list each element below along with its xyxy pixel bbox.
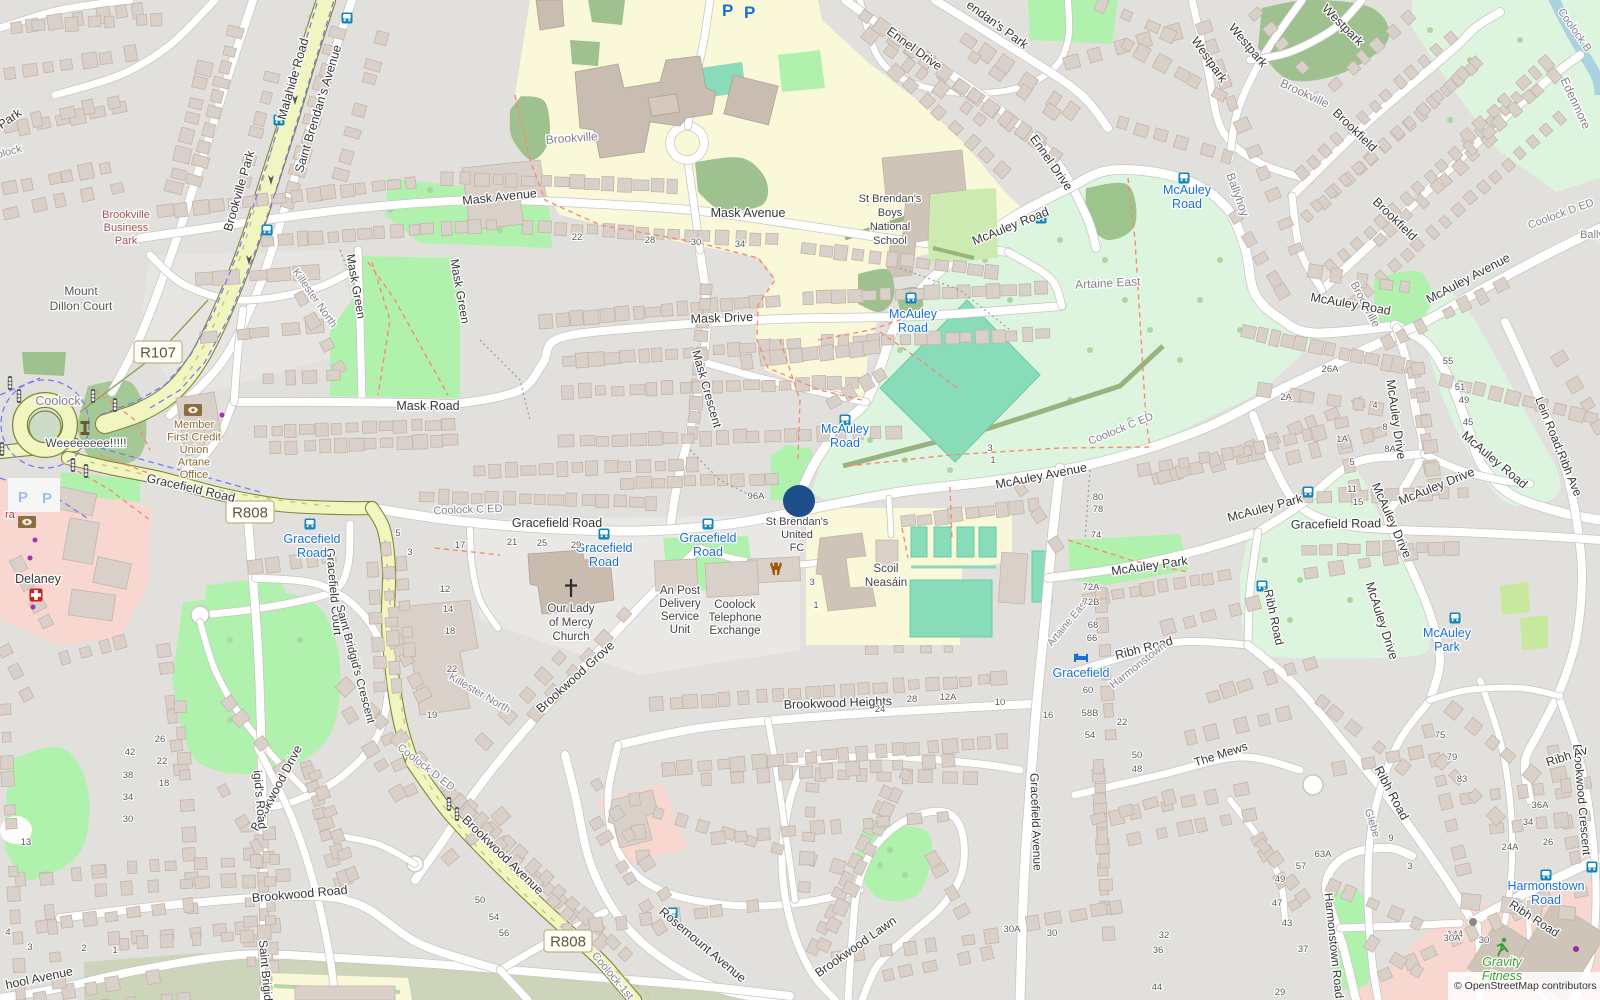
svg-text:51: 51: [1455, 382, 1466, 393]
svg-text:30: 30: [1479, 935, 1490, 946]
svg-text:49: 49: [1275, 874, 1286, 885]
svg-text:Mask Avenue: Mask Avenue: [711, 206, 786, 220]
svg-text:24: 24: [875, 704, 886, 715]
svg-text:68: 68: [1088, 620, 1099, 631]
svg-text:1A: 1A: [1336, 434, 1348, 445]
svg-text:25: 25: [537, 538, 548, 549]
svg-text:Mask Drive: Mask Drive: [690, 310, 753, 326]
svg-text:3: 3: [407, 547, 412, 558]
svg-text:17: 17: [455, 540, 466, 551]
svg-text:75: 75: [1435, 730, 1446, 741]
svg-text:32: 32: [1159, 930, 1170, 941]
svg-text:Our Ladyof MercyChurch: Our Ladyof MercyChurch: [547, 603, 595, 643]
svg-text:Delaney: Delaney: [15, 572, 62, 586]
svg-text:30: 30: [123, 814, 134, 825]
svg-text:Coolock C ED: Coolock C ED: [433, 503, 503, 517]
svg-text:Gracefield Road: Gracefield Road: [512, 516, 602, 530]
svg-text:9: 9: [1388, 833, 1393, 844]
svg-text:R808: R808: [550, 934, 586, 951]
svg-text:60: 60: [1083, 685, 1094, 696]
svg-text:78: 78: [1093, 504, 1104, 515]
svg-text:Weeeeeeee!!!!!: Weeeeeeee!!!!!: [45, 436, 126, 450]
svg-text:36A: 36A: [1532, 800, 1550, 811]
svg-text:56: 56: [499, 928, 510, 939]
svg-text:66: 66: [1087, 633, 1098, 644]
svg-text:3: 3: [809, 577, 814, 588]
svg-text:Gracefield: Gracefield: [1053, 666, 1110, 680]
svg-text:R808: R808: [232, 505, 268, 522]
svg-text:54: 54: [489, 912, 500, 923]
svg-text:54: 54: [1085, 730, 1096, 741]
svg-text:5: 5: [395, 528, 400, 539]
svg-text:28: 28: [907, 694, 918, 705]
svg-text:26A: 26A: [1322, 364, 1340, 375]
svg-text:3: 3: [1407, 861, 1412, 872]
svg-text:36: 36: [1153, 945, 1164, 956]
svg-text:30A: 30A: [1444, 933, 1462, 944]
svg-text:79: 79: [1447, 752, 1458, 763]
svg-text:22: 22: [157, 756, 168, 767]
svg-text:43: 43: [1282, 918, 1293, 929]
svg-text:8A: 8A: [1384, 444, 1396, 455]
svg-text:22: 22: [1117, 717, 1128, 728]
svg-text:10: 10: [995, 697, 1006, 708]
svg-text:12: 12: [440, 584, 451, 595]
svg-text:2: 2: [81, 943, 86, 954]
svg-text:2A: 2A: [1280, 392, 1292, 403]
svg-text:45: 45: [1463, 417, 1474, 428]
svg-text:22: 22: [572, 232, 583, 243]
svg-text:1: 1: [813, 600, 818, 611]
svg-text:Coolock: Coolock: [35, 394, 81, 408]
svg-text:38: 38: [123, 770, 134, 781]
svg-text:Gracefield Road: Gracefield Road: [1291, 516, 1382, 532]
svg-text:P: P: [18, 489, 28, 506]
svg-text:29: 29: [571, 540, 582, 551]
svg-text:12A: 12A: [940, 692, 958, 703]
svg-text:30: 30: [691, 237, 702, 248]
svg-text:GravityFitness: GravityFitness: [1482, 955, 1523, 983]
svg-text:29: 29: [1275, 987, 1286, 998]
svg-text:30: 30: [1047, 928, 1058, 939]
svg-text:R107: R107: [140, 345, 176, 362]
svg-text:P: P: [744, 3, 755, 22]
svg-text:34: 34: [735, 239, 746, 250]
svg-text:14: 14: [443, 604, 454, 615]
svg-text:34: 34: [1523, 817, 1534, 828]
svg-text:72A: 72A: [1083, 582, 1101, 593]
svg-text:P: P: [42, 490, 52, 507]
svg-text:48: 48: [1132, 764, 1143, 775]
svg-text:58B: 58B: [1082, 708, 1099, 719]
svg-text:55: 55: [1443, 356, 1454, 367]
svg-text:8: 8: [1382, 422, 1387, 433]
svg-text:50: 50: [475, 895, 486, 906]
svg-text:34: 34: [123, 792, 134, 803]
svg-text:24A: 24A: [1502, 842, 1520, 853]
svg-text:Bally: Bally: [1580, 229, 1600, 241]
svg-text:4: 4: [5, 927, 10, 938]
svg-text:18: 18: [159, 778, 170, 789]
svg-text:4: 4: [1372, 400, 1377, 411]
svg-text:Mask Road: Mask Road: [396, 399, 459, 413]
svg-text:1: 1: [990, 455, 995, 466]
svg-text:19: 19: [427, 710, 438, 721]
svg-text:3: 3: [987, 443, 992, 454]
svg-text:18: 18: [445, 626, 456, 637]
svg-text:96A: 96A: [748, 491, 766, 502]
svg-text:80: 80: [1093, 492, 1104, 503]
svg-text:13: 13: [21, 837, 32, 848]
svg-text:22: 22: [447, 664, 458, 675]
svg-text:57: 57: [1296, 861, 1307, 872]
svg-text:1: 1: [112, 945, 117, 956]
svg-text:28: 28: [645, 235, 656, 246]
svg-text:63A: 63A: [1315, 849, 1333, 860]
svg-text:21: 21: [507, 537, 518, 548]
svg-text:ra: ra: [5, 509, 16, 521]
svg-text:16: 16: [1043, 710, 1054, 721]
svg-text:11: 11: [1347, 484, 1357, 495]
svg-text:26: 26: [1543, 837, 1554, 848]
svg-text:3: 3: [27, 942, 32, 953]
svg-text:© OpenStreetMap contributors: © OpenStreetMap contributors: [1454, 980, 1597, 992]
svg-text:47: 47: [1272, 898, 1283, 909]
svg-text:CoolockTelephoneExchange: CoolockTelephoneExchange: [708, 599, 761, 637]
svg-text:74: 74: [1091, 530, 1102, 541]
svg-text:26: 26: [155, 734, 166, 745]
svg-text:72B: 72B: [1083, 597, 1100, 608]
svg-text:P: P: [722, 1, 733, 20]
svg-text:83: 83: [1457, 774, 1468, 785]
svg-text:42: 42: [125, 747, 136, 758]
svg-text:15: 15: [1353, 497, 1364, 508]
svg-text:37: 37: [1298, 944, 1309, 955]
svg-text:44: 44: [1152, 982, 1163, 993]
svg-text:49: 49: [1459, 395, 1470, 406]
svg-text:30A: 30A: [1004, 924, 1022, 935]
svg-text:5: 5: [1349, 457, 1354, 468]
svg-text:50: 50: [1132, 750, 1143, 761]
